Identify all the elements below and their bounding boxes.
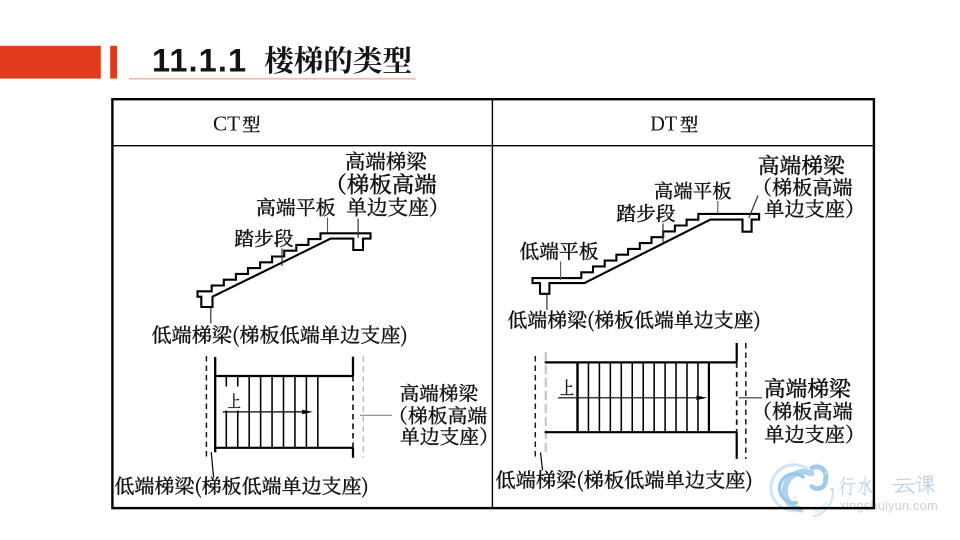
svg-text:CT: CT: [213, 112, 240, 136]
svg-text:11.1.1: 11.1.1: [152, 43, 247, 79]
svg-text:xingshuiyun.com: xingshuiyun.com: [840, 498, 938, 513]
svg-text:DT: DT: [650, 112, 677, 136]
